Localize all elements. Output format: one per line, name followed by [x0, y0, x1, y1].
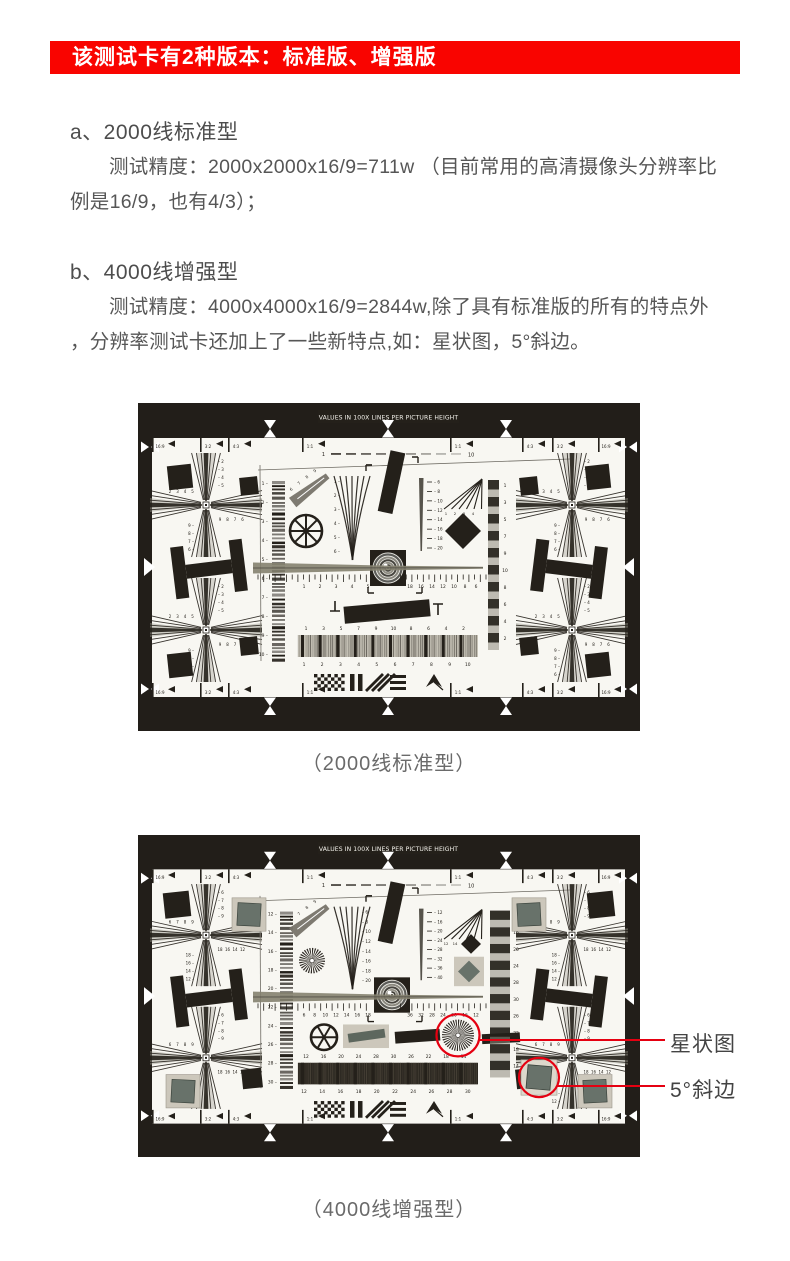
svg-text:5: 5 [191, 489, 194, 494]
svg-text:2: 2 [462, 626, 465, 632]
svg-text:6 –: 6 – [554, 672, 560, 677]
svg-text:4: 4 [504, 619, 507, 625]
svg-text:– 6: – 6 [362, 910, 368, 915]
svg-text:4:3: 4:3 [233, 444, 240, 449]
svg-text:4: 4 [550, 489, 553, 494]
svg-text:5 –: 5 – [334, 535, 340, 540]
svg-text:2: 2 [321, 662, 324, 668]
svg-text:4:3: 4:3 [527, 444, 534, 449]
svg-text:8 –: 8 – [554, 531, 560, 536]
svg-text:– 10: – 10 [362, 929, 371, 934]
svg-text:4:3: 4:3 [233, 875, 240, 880]
svg-text:– 9: – 9 [218, 914, 224, 919]
svg-text:– 6: – 6 [434, 480, 440, 485]
svg-text:18: 18 [583, 1070, 589, 1075]
svg-text:30: 30 [465, 1089, 471, 1095]
enhanced-chart-caption: （4000线增强型） [138, 1193, 640, 1222]
svg-text:– 8: – 8 [218, 1028, 224, 1033]
svg-text:10: 10 [502, 568, 508, 574]
svg-text:3:2: 3:2 [205, 875, 212, 880]
svg-text:– 20: – 20 [362, 978, 371, 983]
svg-text:6: 6 [475, 584, 478, 590]
standard-chart-figure: VALUES IN 100X LINES PER PICTURE HEIGHT1… [138, 403, 640, 731]
svg-text:14: 14 [513, 1064, 519, 1070]
svg-text:20: 20 [374, 1089, 380, 1095]
svg-text:– 18: – 18 [362, 968, 371, 973]
svg-text:14: 14 [319, 1089, 325, 1095]
svg-text:3:2: 3:2 [557, 1117, 564, 1122]
svg-text:– 6: – 6 [218, 1013, 224, 1018]
svg-text:– 5: – 5 [218, 608, 224, 613]
svg-text:1:1: 1:1 [307, 444, 314, 449]
svg-text:8: 8 [592, 517, 595, 522]
svg-text:– 14: – 14 [362, 949, 371, 954]
svg-text:– 8: – 8 [218, 906, 224, 911]
svg-text:– 16: – 16 [434, 527, 443, 532]
svg-text:6: 6 [607, 517, 610, 522]
svg-text:– 4: – 4 [584, 600, 590, 605]
svg-text:6 –: 6 – [334, 549, 340, 554]
svg-text:1:1: 1:1 [307, 690, 314, 695]
svg-text:– 40: – 40 [434, 975, 443, 980]
svg-text:4:3: 4:3 [527, 1117, 534, 1122]
svg-text:26: 26 [513, 1014, 519, 1020]
svg-text:7 –: 7 – [262, 595, 268, 601]
svg-text:24: 24 [410, 1089, 416, 1095]
svg-text:28: 28 [429, 1013, 435, 1019]
svg-text:8: 8 [226, 642, 229, 647]
svg-text:24: 24 [513, 964, 519, 970]
svg-text:2: 2 [319, 584, 322, 590]
svg-text:4:3: 4:3 [527, 690, 534, 695]
svg-text:16 –: 16 – [186, 961, 194, 966]
svg-text:– 4: – 4 [218, 475, 224, 480]
svg-text:4: 4 [184, 489, 187, 494]
svg-text:9: 9 [504, 551, 507, 557]
svg-text:7: 7 [412, 662, 415, 668]
svg-text:16:9: 16:9 [156, 875, 165, 880]
svg-text:7: 7 [357, 626, 360, 632]
svg-text:7 –: 7 – [554, 664, 560, 669]
svg-text:– 8: – 8 [434, 489, 440, 494]
svg-text:12 –: 12 – [186, 976, 194, 981]
svg-text:3 –: 3 – [334, 507, 340, 512]
svg-text:6: 6 [504, 602, 507, 608]
svg-text:9 –: 9 – [262, 633, 268, 639]
svg-text:12 –: 12 – [268, 912, 277, 918]
svg-text:8: 8 [504, 585, 507, 591]
svg-text:18: 18 [217, 947, 223, 952]
svg-text:4:3: 4:3 [233, 1117, 240, 1122]
svg-text:1 –: 1 – [262, 481, 268, 487]
svg-text:– 3: – 3 [218, 467, 224, 472]
enhanced-chart-figure: VALUES IN 100X LINES PER PICTURE HEIGHT1… [138, 835, 640, 1157]
svg-text:12: 12 [303, 1054, 309, 1060]
svg-text:18: 18 [407, 584, 413, 590]
svg-text:9: 9 [375, 626, 378, 632]
heading-enhanced: b、4000线增强型 [70, 256, 238, 286]
svg-text:30: 30 [513, 997, 519, 1003]
svg-text:14: 14 [232, 947, 238, 952]
svg-text:– 6: – 6 [218, 890, 224, 895]
svg-text:30: 30 [391, 1054, 397, 1060]
svg-text:18 –: 18 – [186, 953, 194, 958]
svg-text:1:1: 1:1 [455, 690, 462, 695]
svg-text:6 –: 6 – [554, 547, 560, 552]
svg-text:1 –: 1 – [334, 479, 340, 484]
svg-text:7: 7 [600, 642, 603, 647]
svg-text:– 24: – 24 [434, 938, 443, 943]
svg-text:1: 1 [305, 626, 308, 632]
svg-text:9: 9 [585, 517, 588, 522]
svg-text:4: 4 [357, 662, 360, 668]
svg-text:5: 5 [557, 614, 560, 619]
svg-text:8 –: 8 – [554, 656, 560, 661]
svg-text:9: 9 [219, 517, 222, 522]
svg-text:5: 5 [367, 584, 370, 590]
svg-text:3: 3 [322, 626, 325, 632]
svg-text:22: 22 [513, 1030, 519, 1036]
svg-text:8 –: 8 – [262, 614, 268, 620]
svg-text:12: 12 [606, 947, 612, 952]
svg-text:3:2: 3:2 [557, 444, 564, 449]
svg-text:12: 12 [440, 584, 446, 590]
svg-text:6: 6 [607, 642, 610, 647]
paragraph-standard: 测试精度：2000x2000x16/9=711w （目前常用的高清摄像头分辨率比… [70, 150, 730, 220]
svg-text:24 –: 24 – [268, 1023, 277, 1029]
svg-text:1: 1 [322, 883, 325, 889]
svg-text:9 –: 9 – [188, 523, 194, 528]
svg-text:1:1: 1:1 [455, 875, 462, 880]
svg-text:16:9: 16:9 [602, 444, 611, 449]
svg-text:3: 3 [339, 662, 342, 668]
svg-text:18 –: 18 – [552, 953, 560, 958]
svg-text:– 9: – 9 [218, 1036, 224, 1041]
svg-text:12: 12 [444, 942, 449, 946]
svg-text:16: 16 [591, 1070, 597, 1075]
standard-chart-caption: （2000线标准型） [138, 747, 640, 776]
svg-text:14: 14 [232, 1070, 238, 1075]
svg-text:– 28: – 28 [434, 947, 443, 952]
svg-text:20: 20 [338, 1054, 344, 1060]
svg-text:5: 5 [375, 662, 378, 668]
svg-text:16: 16 [225, 947, 231, 952]
svg-text:16:9: 16:9 [156, 1117, 165, 1122]
svg-text:16:9: 16:9 [602, 875, 611, 880]
heading-standard: a、2000线标准型 [70, 116, 238, 146]
svg-text:– 12: – 12 [434, 508, 443, 513]
svg-text:– 5: – 5 [584, 608, 590, 613]
svg-text:14: 14 [598, 947, 604, 952]
svg-text:– 20: – 20 [434, 929, 443, 934]
svg-text:10: 10 [391, 626, 397, 632]
svg-text:4: 4 [445, 626, 448, 632]
svg-text:5: 5 [191, 614, 194, 619]
svg-text:18: 18 [356, 1089, 362, 1095]
svg-text:3:2: 3:2 [205, 690, 212, 695]
svg-text:16 –: 16 – [552, 961, 560, 966]
svg-text:30 –: 30 – [268, 1079, 277, 1085]
svg-text:14 –: 14 – [186, 968, 194, 973]
svg-text:8: 8 [464, 584, 467, 590]
annotation-line-star [479, 1039, 665, 1041]
svg-text:3 –: 3 – [262, 519, 268, 525]
svg-text:12 –: 12 – [552, 976, 560, 981]
svg-text:20: 20 [513, 947, 519, 953]
svg-text:3: 3 [176, 489, 179, 494]
svg-text:16: 16 [225, 1070, 231, 1075]
svg-text:18: 18 [583, 947, 589, 952]
svg-text:– 14: – 14 [434, 517, 443, 522]
svg-text:– 2: – 2 [584, 459, 590, 464]
svg-text:16: 16 [338, 1089, 344, 1095]
svg-text:9: 9 [448, 662, 451, 668]
svg-text:– 6: – 6 [584, 1013, 590, 1018]
svg-text:14: 14 [453, 942, 458, 946]
svg-text:14 –: 14 – [268, 930, 277, 936]
svg-text:3: 3 [335, 584, 338, 590]
svg-text:9: 9 [219, 642, 222, 647]
svg-text:16: 16 [321, 1054, 327, 1060]
svg-text:12: 12 [606, 1070, 612, 1075]
svg-text:5: 5 [557, 489, 560, 494]
svg-text:1: 1 [504, 483, 507, 489]
svg-text:8 –: 8 – [188, 531, 194, 536]
product-description-page: 该测试卡有2种版本：标准版、增强版 a、2000线标准型 测试精度：2000x2… [0, 0, 790, 1261]
svg-text:3: 3 [504, 500, 507, 506]
svg-text:– 2: – 2 [584, 584, 590, 589]
svg-text:8: 8 [410, 626, 413, 632]
svg-text:12: 12 [301, 1089, 307, 1095]
svg-text:16: 16 [418, 584, 424, 590]
svg-text:9 –: 9 – [554, 523, 560, 528]
svg-text:16:9: 16:9 [156, 444, 165, 449]
svg-text:6 –: 6 – [188, 547, 194, 552]
svg-text:3: 3 [542, 489, 545, 494]
section-banner: 该测试卡有2种版本：标准版、增强版 [50, 41, 740, 74]
svg-text:14: 14 [598, 1070, 604, 1075]
svg-text:4: 4 [550, 614, 553, 619]
svg-text:2 –: 2 – [334, 493, 340, 498]
svg-text:4 –: 4 – [262, 538, 268, 544]
svg-text:– 12: – 12 [434, 910, 443, 915]
svg-text:6: 6 [241, 517, 244, 522]
svg-text:20 –: 20 – [268, 986, 277, 992]
svg-text:12: 12 [473, 1013, 479, 1019]
svg-text:– 36: – 36 [434, 966, 443, 971]
svg-text:8: 8 [313, 1013, 316, 1019]
svg-text:28: 28 [513, 980, 519, 986]
svg-text:10: 10 [323, 1013, 329, 1019]
svg-text:3:2: 3:2 [557, 875, 564, 880]
svg-text:2: 2 [504, 636, 507, 642]
svg-text:18 –: 18 – [268, 967, 277, 973]
svg-text:2: 2 [169, 614, 172, 619]
svg-text:7 –: 7 – [188, 539, 194, 544]
svg-text:– 7: – 7 [218, 898, 224, 903]
svg-text:– 4: – 4 [218, 600, 224, 605]
svg-text:1: 1 [322, 452, 325, 458]
svg-text:7: 7 [504, 534, 507, 540]
svg-text:– 8: – 8 [362, 919, 368, 924]
svg-text:26: 26 [429, 1089, 435, 1095]
svg-text:3:2: 3:2 [205, 1117, 212, 1122]
svg-text:– 18: – 18 [434, 536, 443, 541]
svg-text:5: 5 [340, 626, 343, 632]
svg-text:2: 2 [535, 614, 538, 619]
svg-text:9 –: 9 – [554, 648, 560, 653]
svg-text:16: 16 [355, 1013, 361, 1019]
svg-text:10: 10 [465, 662, 471, 668]
svg-text:22: 22 [426, 1054, 432, 1060]
svg-text:12: 12 [240, 947, 246, 952]
svg-text:5: 5 [504, 517, 507, 523]
svg-text:1:1: 1:1 [307, 1117, 314, 1122]
svg-text:3: 3 [176, 614, 179, 619]
svg-text:28: 28 [373, 1054, 379, 1060]
svg-text:7: 7 [600, 517, 603, 522]
svg-text:– 2: – 2 [218, 459, 224, 464]
svg-text:36: 36 [407, 1013, 413, 1019]
svg-text:7: 7 [234, 642, 237, 647]
svg-text:6: 6 [394, 662, 397, 668]
svg-text:– 16: – 16 [434, 919, 443, 924]
annotation-label-star: 星状图 [670, 1028, 736, 1058]
svg-text:18: 18 [365, 1013, 371, 1019]
svg-text:16:9: 16:9 [602, 1117, 611, 1122]
svg-text:10 –: 10 – [259, 652, 268, 658]
svg-text:32: 32 [418, 1013, 424, 1019]
svg-text:18: 18 [217, 1070, 223, 1075]
svg-text:– 3: – 3 [218, 592, 224, 597]
svg-text:16:9: 16:9 [602, 690, 611, 695]
svg-text:– 7: – 7 [218, 1021, 224, 1026]
svg-text:– 10: – 10 [434, 498, 443, 503]
svg-text:1:1: 1:1 [455, 1117, 462, 1122]
enhanced-resolution-chart: VALUES IN 100X LINES PER PICTURE HEIGHT1… [138, 835, 640, 1157]
svg-text:8: 8 [592, 642, 595, 647]
svg-text:– 5: – 5 [218, 483, 224, 488]
svg-text:14: 14 [429, 584, 435, 590]
svg-text:26 –: 26 – [268, 1042, 277, 1048]
svg-text:3:2: 3:2 [557, 690, 564, 695]
svg-text:10: 10 [451, 584, 457, 590]
svg-text:28: 28 [447, 1089, 453, 1095]
svg-text:1:1: 1:1 [307, 875, 314, 880]
svg-text:– 12: – 12 [362, 939, 371, 944]
svg-text:7: 7 [234, 517, 237, 522]
svg-text:28 –: 28 – [268, 1061, 277, 1067]
svg-text:1: 1 [303, 662, 306, 668]
svg-text:16 –: 16 – [268, 949, 277, 955]
svg-text:3: 3 [542, 614, 545, 619]
svg-text:18: 18 [513, 1047, 519, 1053]
standard-resolution-chart: VALUES IN 100X LINES PER PICTURE HEIGHT1… [138, 403, 640, 731]
svg-text:6 –: 6 – [262, 576, 268, 582]
svg-text:9: 9 [585, 642, 588, 647]
svg-text:7 –: 7 – [554, 539, 560, 544]
svg-text:– 32: – 32 [434, 956, 443, 961]
svg-text:22: 22 [392, 1089, 398, 1095]
svg-text:14 –: 14 – [552, 968, 560, 973]
svg-text:8: 8 [430, 662, 433, 668]
svg-text:6: 6 [427, 626, 430, 632]
svg-text:10: 10 [468, 453, 474, 459]
svg-text:10: 10 [468, 884, 474, 890]
svg-text:5 –: 5 – [262, 557, 268, 563]
svg-text:24: 24 [356, 1054, 362, 1060]
svg-text:12 –: 12 – [552, 1099, 560, 1104]
svg-text:– 2: – 2 [218, 584, 224, 589]
svg-text:4:3: 4:3 [233, 690, 240, 695]
paragraph-enhanced: 测试精度：4000x4000x16/9=2844w,除了具有标准版的所有的特点外… [70, 290, 730, 360]
svg-text:26: 26 [408, 1054, 414, 1060]
svg-text:– 16: – 16 [362, 959, 371, 964]
svg-text:4: 4 [351, 584, 354, 590]
svg-text:– 8: – 8 [584, 1028, 590, 1033]
svg-text:6: 6 [303, 1013, 306, 1019]
svg-text:14: 14 [344, 1013, 350, 1019]
svg-text:4:3: 4:3 [527, 875, 534, 880]
svg-text:3:2: 3:2 [205, 444, 212, 449]
svg-text:8: 8 [226, 517, 229, 522]
svg-text:1: 1 [303, 584, 306, 590]
svg-text:12: 12 [333, 1013, 339, 1019]
annotation-line-slant [557, 1085, 665, 1087]
svg-text:1:1: 1:1 [455, 444, 462, 449]
annotation-label-slant: 5°斜边 [670, 1074, 736, 1104]
svg-text:16: 16 [591, 947, 597, 952]
svg-text:16:9: 16:9 [156, 690, 165, 695]
svg-text:4 –: 4 – [334, 521, 340, 526]
svg-text:2 –: 2 – [262, 500, 268, 506]
svg-text:4: 4 [184, 614, 187, 619]
svg-text:– 20: – 20 [434, 546, 443, 551]
